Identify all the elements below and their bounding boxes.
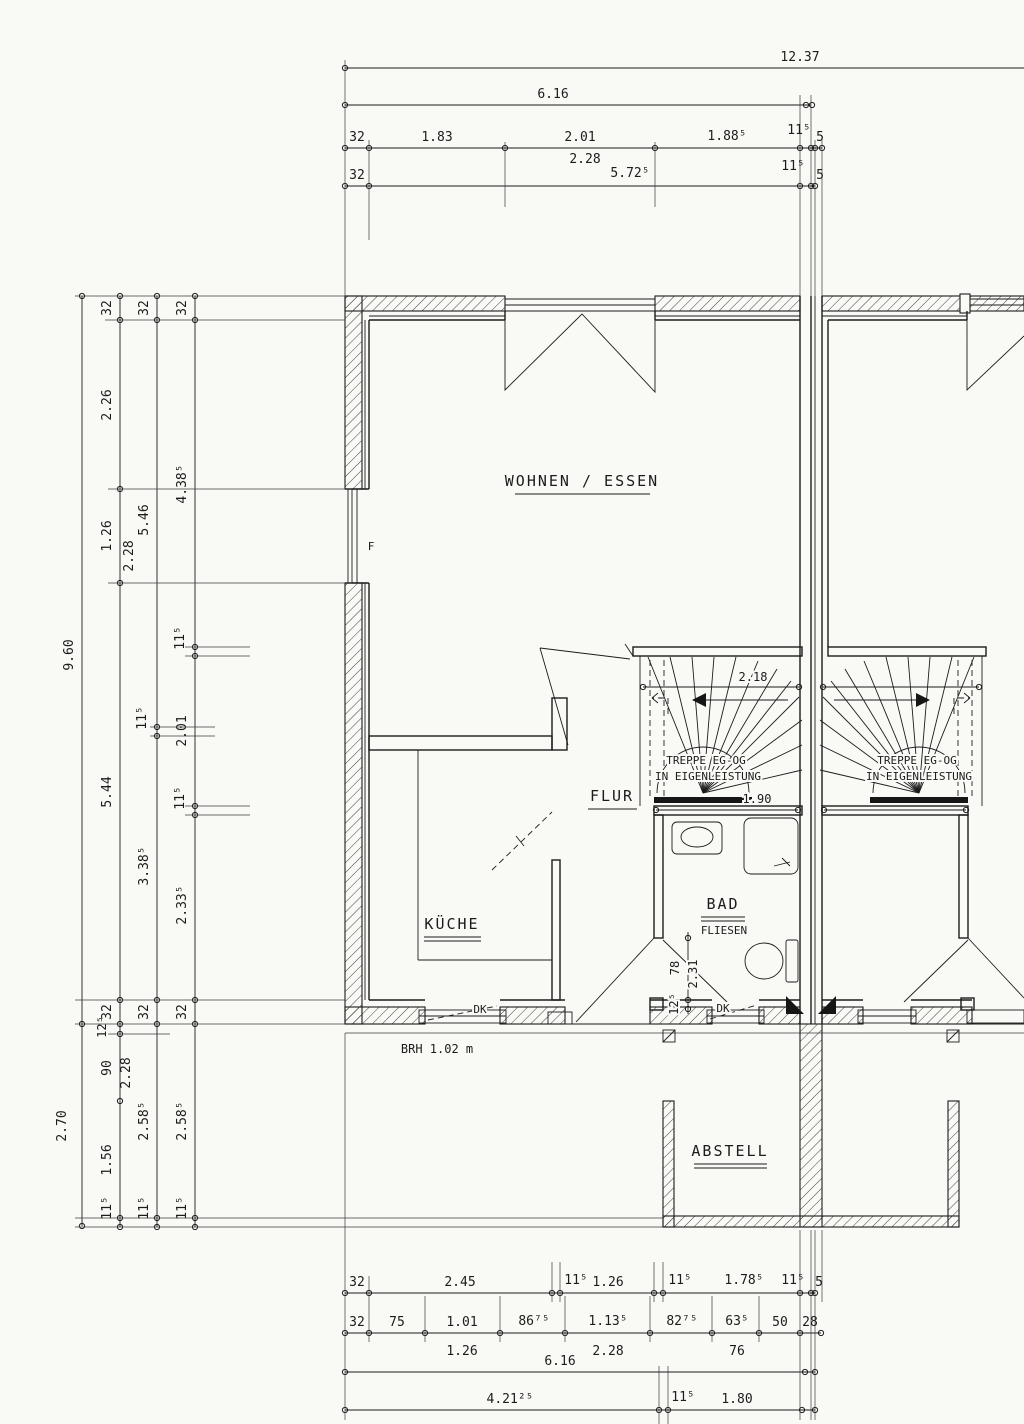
dim-label: 28	[802, 1315, 818, 1330]
dim-label: 11⁵	[781, 1273, 804, 1288]
stair-label: TREPPE EG-OG	[666, 754, 745, 767]
shower-icon	[744, 818, 798, 874]
dim-label: 6.16	[544, 1354, 575, 1369]
room-label-bath: BAD	[706, 895, 739, 913]
room-label-storage: ABSTELL	[691, 1142, 768, 1160]
dim-label: 2.70	[55, 1110, 70, 1141]
dim-label: 32	[349, 130, 365, 145]
dim-label: 5	[816, 168, 824, 183]
room-label-hall: FLUR	[590, 787, 634, 805]
dim-label: 11⁵	[100, 1196, 115, 1219]
dim-label: 1.88⁵	[707, 129, 746, 144]
window-dk-label: DK	[716, 1002, 730, 1015]
window-f-label: F	[368, 540, 375, 553]
sill-height-note: BRH 1.02 m	[401, 1042, 473, 1056]
room-label-bath-finish: FLIESEN	[701, 924, 747, 937]
dim-label: 11⁵	[173, 786, 188, 809]
dim-label: 1.01	[446, 1315, 477, 1330]
dim-label: 32	[175, 1004, 190, 1020]
dim-label: 5	[816, 130, 824, 145]
dim-label: 2.45	[444, 1275, 475, 1290]
scanned-floor-plan-page: WOHNEN / ESSEN KÜCHE FLUR BAD FLIESEN AB…	[0, 0, 1024, 1424]
stair-dim: 1.90	[743, 792, 772, 806]
dim-label: 11⁵	[175, 1196, 190, 1219]
dim-label: 63⁵	[725, 1314, 748, 1329]
dim-label: 76	[729, 1344, 745, 1359]
dim-label: 2.28	[119, 1057, 134, 1088]
bath-door-dim: 2.31	[686, 960, 700, 989]
dim-label: 5	[815, 1275, 823, 1290]
dim-label: 1.83	[421, 130, 452, 145]
stair-label: TREPPE EG-OG	[877, 754, 956, 767]
dim-label: 75	[389, 1315, 405, 1330]
bath-door-dim: 12⁵	[667, 993, 681, 1015]
labels: WOHNEN / ESSEN KÜCHE FLUR BAD FLIESEN AB…	[55, 50, 972, 1407]
dim-label: 11⁵	[135, 706, 150, 729]
dim-label: 3.38⁵	[137, 846, 152, 885]
dim-label: 32	[137, 1004, 152, 1020]
window-dk-label: DK	[473, 1003, 487, 1016]
dim-label: 90	[100, 1060, 115, 1076]
dim-label: 32	[137, 300, 152, 316]
dim-label: 1.26	[446, 1344, 477, 1359]
dim-label: 2.26	[100, 389, 115, 420]
dim-label: 32	[100, 300, 115, 316]
dim-label: 2.01	[564, 130, 595, 145]
dim-label: 11⁵	[781, 159, 804, 174]
dim-label: 2.28	[122, 540, 137, 571]
dim-label: 12⁵	[95, 1016, 109, 1038]
stair-direction-arrow-icon	[692, 693, 706, 707]
dim-label: 11⁵	[137, 1196, 152, 1219]
dim-label: 2.33⁵	[175, 885, 190, 924]
dim-label: 1.13⁵	[588, 1314, 627, 1329]
interior-walls-right-unit	[818, 320, 1024, 1014]
downpipe-icon	[947, 1030, 959, 1042]
dim-label: 4.38⁵	[175, 464, 190, 503]
dim-label: 2.58⁵	[175, 1101, 190, 1140]
floor-plan-drawing: WOHNEN / ESSEN KÜCHE FLUR BAD FLIESEN AB…	[0, 0, 1024, 1424]
dim-label: 1.80	[721, 1392, 752, 1407]
dim-label: 50	[772, 1315, 788, 1330]
interior-walls-left-unit	[369, 644, 804, 1022]
dim-label: 2.28	[592, 1344, 623, 1359]
dim-label: 2.01	[175, 715, 190, 746]
dim-label: 32	[349, 1315, 365, 1330]
dim-label: 82⁷⁵	[666, 1314, 697, 1329]
dim-label: 11⁵	[671, 1390, 694, 1405]
stair-label: IN EIGENLEISTUNG	[655, 770, 761, 783]
room-label-living: WOHNEN / ESSEN	[505, 472, 659, 490]
dim-label: 32	[175, 300, 190, 316]
downpipe-icon	[663, 1030, 675, 1042]
dim-label: 1.26	[100, 520, 115, 551]
dim-label: 5.72⁵	[610, 166, 649, 181]
dim-label: 4.21²⁵	[487, 1392, 534, 1407]
toilet-icon	[745, 940, 798, 982]
dim-label: 11⁵	[564, 1273, 587, 1288]
dim-label: 1.26	[592, 1275, 623, 1290]
window-opening-symbols	[505, 312, 1024, 392]
dim-label: 5.46	[137, 504, 152, 535]
dim-label: 2.58⁵	[137, 1101, 152, 1140]
dim-label: 5.44	[100, 776, 115, 807]
dim-label: 11⁵	[173, 626, 188, 649]
dimension-block-bottom	[342, 1033, 823, 1424]
stair-direction-arrow-icon	[916, 693, 930, 707]
dim-label: 32	[349, 1275, 365, 1290]
dim-label: 11⁵	[668, 1273, 691, 1288]
dim-label: 11⁵	[787, 123, 810, 138]
dimension-block-top	[342, 60, 1024, 296]
dim-label: 12.37	[780, 50, 819, 65]
dim-label: 32	[349, 168, 365, 183]
dim-label: 1.56	[100, 1144, 115, 1175]
stair-left-unit	[640, 657, 802, 813]
washbasin-icon	[672, 822, 722, 854]
dim-label: 6.16	[537, 87, 568, 102]
dim-label: 86⁷⁵	[518, 1314, 549, 1329]
dim-label: 2.28	[569, 152, 600, 167]
dim-label: 1.78⁵	[724, 1273, 763, 1288]
bath-door-dim: 78	[668, 961, 682, 975]
stair-right-unit	[820, 657, 982, 813]
room-label-kitchen: KÜCHE	[424, 914, 479, 933]
stair-label: IN EIGENLEISTUNG	[866, 770, 972, 783]
stair-dim: 2.18	[739, 670, 768, 684]
dim-label: 9.60	[62, 639, 77, 670]
party-wall	[800, 296, 822, 1227]
